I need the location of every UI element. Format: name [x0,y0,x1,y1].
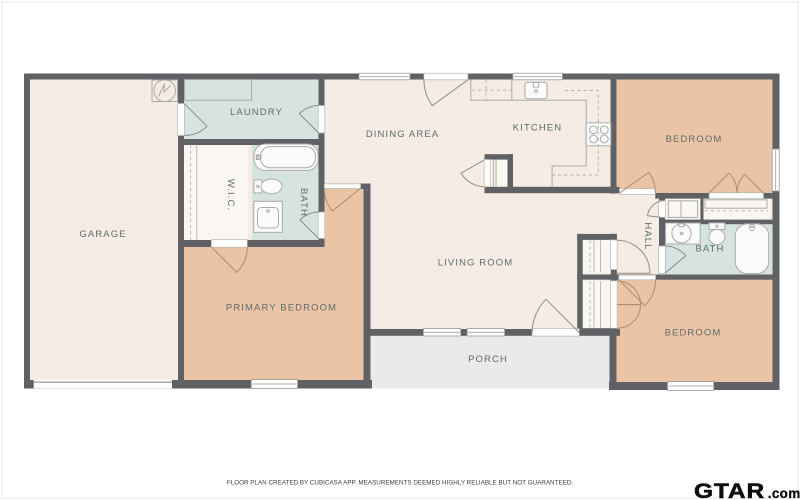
svg-text:PRIMARY BEDROOM: PRIMARY BEDROOM [226,303,337,314]
svg-text:FLOOR PLAN CREATED BY CUBICASA: FLOOR PLAN CREATED BY CUBICASA APP. MEAS… [227,480,574,487]
svg-text:DINING AREA: DINING AREA [366,129,439,140]
svg-text:BATH: BATH [298,188,309,217]
svg-text:LAUNDRY: LAUNDRY [230,107,283,118]
svg-text:LIVING ROOM: LIVING ROOM [438,258,513,269]
svg-text:BATH: BATH [695,244,724,255]
svg-text:PORCH: PORCH [468,354,508,365]
svg-text:GTAR: GTAR [694,479,765,500]
svg-text:KITCHEN: KITCHEN [513,122,562,133]
svg-text:BEDROOM: BEDROOM [665,328,722,339]
svg-text:.com: .com [768,486,800,500]
svg-text:BEDROOM: BEDROOM [666,134,723,145]
svg-text:GARAGE: GARAGE [79,229,126,240]
svg-text:W.I.C.: W.I.C. [225,179,236,211]
svg-text:HALL: HALL [642,222,653,250]
